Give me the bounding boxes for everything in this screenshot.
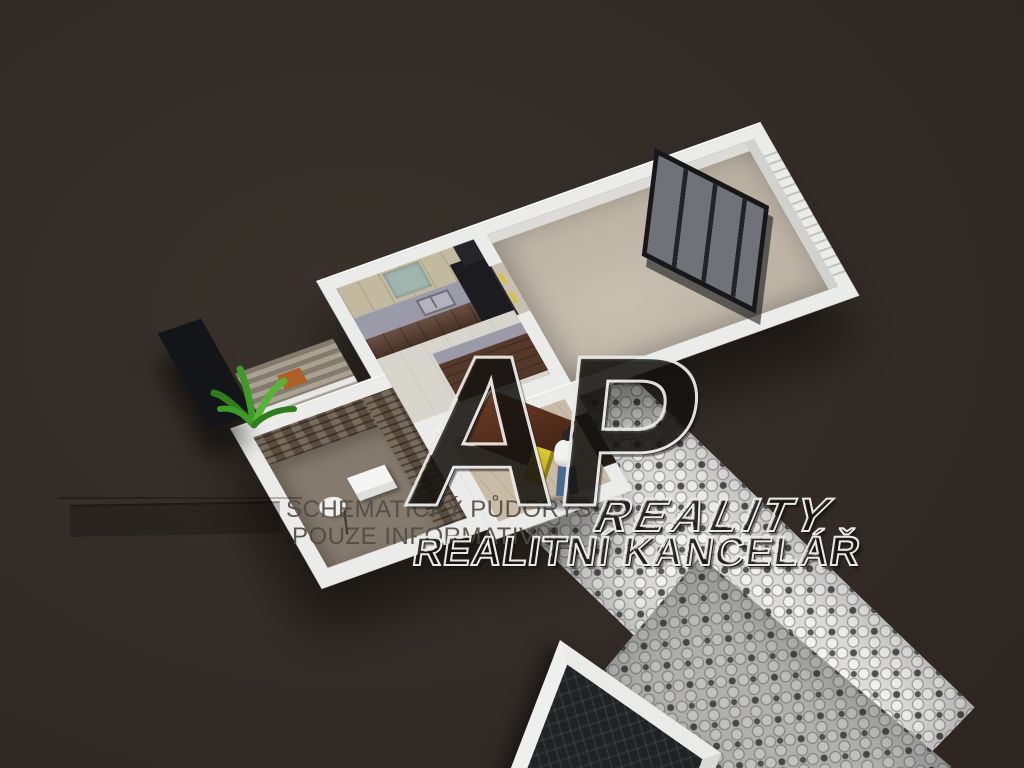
faint-watermark-line [58, 497, 302, 499]
watermark-tagline: REALITNÍ KANCELÁŘ [410, 528, 864, 575]
faint-watermark-bar [70, 501, 281, 537]
potted-plant-icon [206, 355, 302, 437]
floorplan-render-scene: SCHEMATICKÝ PŮDORYS POUZE INFORMATIVNÍ_ … [0, 0, 1024, 768]
